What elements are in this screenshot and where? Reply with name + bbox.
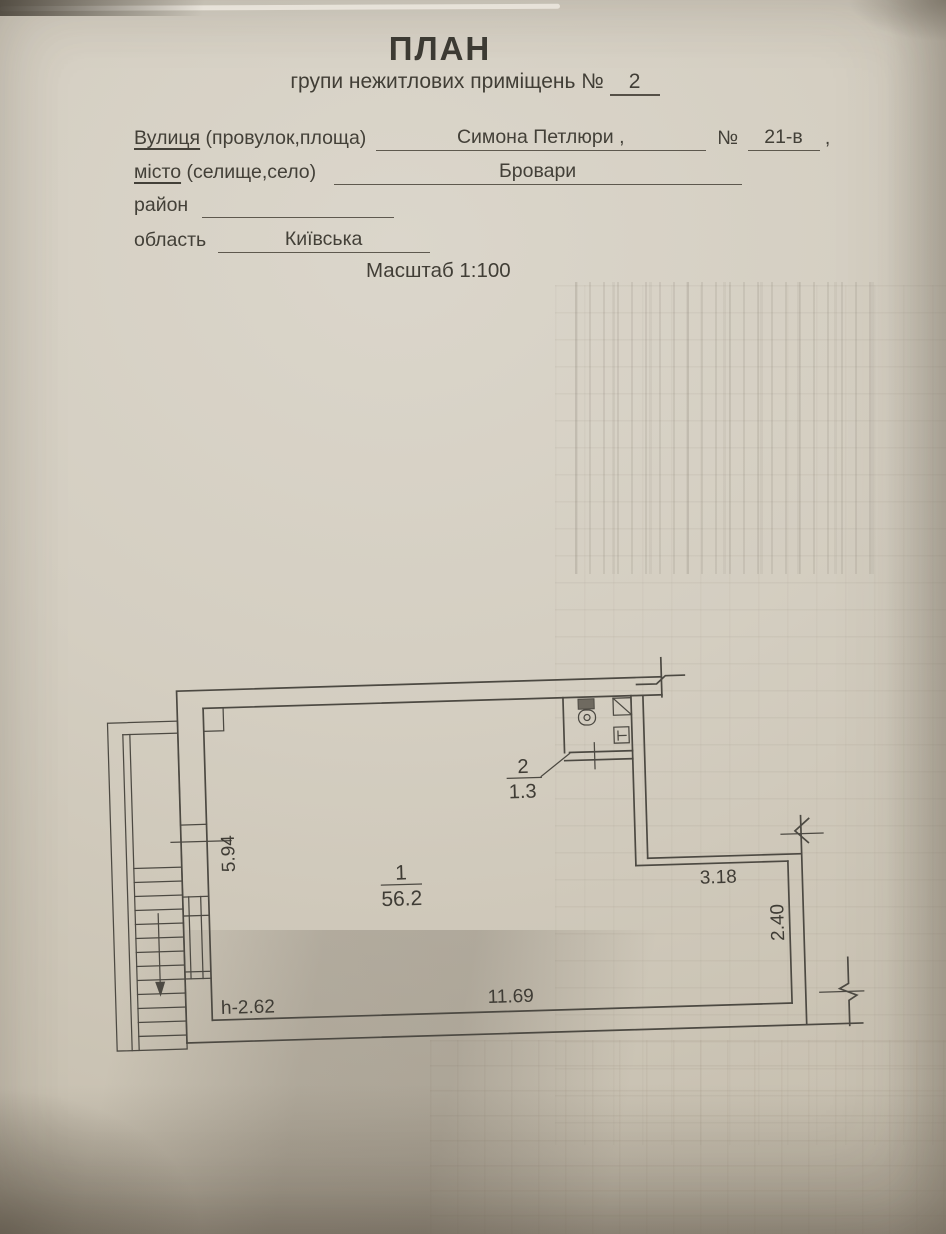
city-value-line: Бровари (334, 158, 742, 185)
wc-toilet-icon (578, 699, 596, 725)
city-label: (селище,село) (181, 161, 316, 183)
region-value-line: Київська (218, 226, 430, 253)
region-label: область (134, 229, 206, 251)
city-label-underlined: місто (134, 161, 181, 183)
wall-break-icons (636, 652, 865, 1031)
premises-number-value: 2 (610, 70, 660, 96)
street-label-underlined: Вулиця (134, 127, 200, 149)
street-label: (провулок,площа) (200, 127, 366, 149)
scale-label: Масштаб 1:100 (366, 259, 511, 283)
document-content: ПЛАН групи нежитлових приміщень № 2 Вули… (0, 0, 946, 1234)
room-1-area: 56.2 (381, 887, 423, 911)
region-value: Київська (285, 228, 363, 250)
dim-right: 2.40 (767, 904, 789, 942)
building-number-suffix: , (825, 127, 830, 149)
room-1-number: 1 (395, 861, 407, 884)
stair-direction-arrow-icon (153, 914, 165, 997)
field-row-region: область Київська (134, 226, 430, 253)
toilet-room (539, 696, 633, 777)
bottom-wall-break-icon (819, 957, 865, 1026)
plan-labels: 1 56.2 2 1.3 5.94 3.18 2.40 11.69 h-2.62 (214, 748, 791, 1019)
field-row-district: район (134, 192, 394, 218)
floor-plan: 1 56.2 2 1.3 5.94 3.18 2.40 11.69 h-2.62 (86, 638, 891, 1101)
staircase (107, 721, 187, 1051)
field-row-city: місто (селище,село) Бровари (134, 158, 742, 185)
sink-icon (614, 727, 629, 743)
street-value: Симона Петлюри , (457, 126, 625, 148)
corner-column (203, 708, 224, 732)
dim-ceiling-height: h-2.62 (221, 996, 275, 1019)
room-2-area: 1.3 (508, 781, 536, 804)
dim-bottom: 11.69 (487, 986, 534, 1008)
dim-left: 5.94 (218, 834, 240, 872)
district-label: район (134, 194, 188, 216)
building-number-label: № (717, 127, 738, 149)
street-value-line: Симона Петлюри , (376, 124, 706, 151)
duct-icon (613, 698, 631, 716)
subtitle-text: групи нежитлових приміщень № (290, 70, 603, 93)
district-value-line (202, 217, 394, 218)
dim-top-right: 3.18 (700, 867, 738, 889)
building-number-value: 21-в (764, 126, 803, 148)
room-2-number: 2 (517, 756, 529, 778)
city-value: Бровари (499, 160, 576, 182)
room-2-leader-line (541, 754, 571, 777)
page-title: ПЛАН (40, 30, 840, 68)
building-number-line: 21-в (748, 124, 820, 151)
floor-plan-area: 1 56.2 2 1.3 5.94 3.18 2.40 11.69 h-2.62 (86, 638, 891, 1101)
stair-treads (134, 867, 187, 1036)
left-wall-opening (183, 896, 211, 979)
field-row-street: Вулиця (провулок,площа) Симона Петлюри ,… (134, 124, 830, 151)
page-subtitle: групи нежитлових приміщень № 2 (40, 70, 910, 96)
door-mark (594, 743, 595, 769)
